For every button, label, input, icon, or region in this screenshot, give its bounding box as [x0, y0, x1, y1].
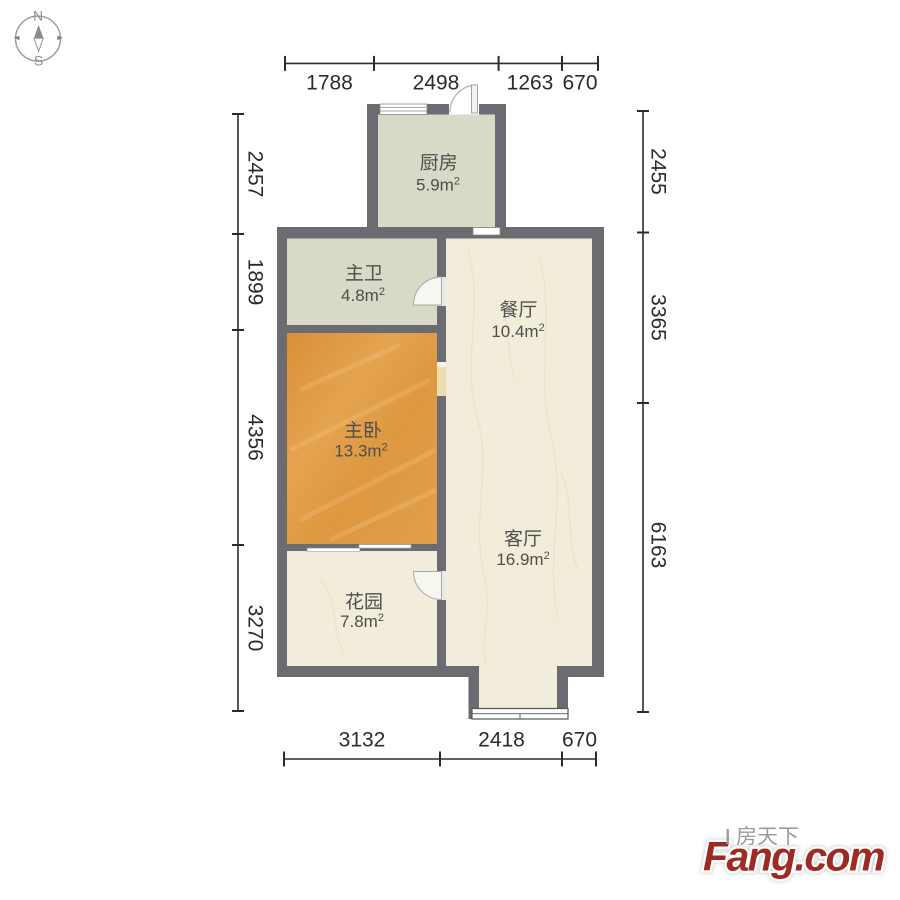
svg-text:4356: 4356 — [244, 414, 267, 461]
svg-text:2455: 2455 — [647, 148, 670, 195]
svg-text:16.9m2: 16.9m2 — [496, 550, 549, 569]
svg-text:670: 670 — [562, 729, 597, 752]
svg-text:3365: 3365 — [647, 294, 670, 341]
svg-text:6163: 6163 — [647, 522, 670, 569]
svg-text:7.8m2: 7.8m2 — [340, 612, 384, 631]
svg-text:S: S — [34, 53, 43, 69]
svg-text:2418: 2418 — [478, 729, 525, 752]
svg-text:5.9m2: 5.9m2 — [416, 176, 460, 195]
svg-text:1899: 1899 — [244, 259, 267, 306]
svg-text:1788: 1788 — [306, 72, 353, 95]
svg-text:3132: 3132 — [339, 729, 386, 752]
svg-text:2498: 2498 — [413, 72, 460, 95]
svg-text:670: 670 — [562, 72, 597, 95]
svg-text:1263: 1263 — [507, 72, 554, 95]
svg-text:N: N — [33, 8, 43, 24]
svg-text:2457: 2457 — [244, 151, 267, 198]
svg-text:13.3m2: 13.3m2 — [334, 442, 387, 461]
svg-text:10.4m2: 10.4m2 — [491, 322, 544, 341]
svg-text:Fang.com: Fang.com — [703, 834, 884, 880]
svg-text:3270: 3270 — [244, 605, 267, 652]
svg-text:4.8m2: 4.8m2 — [341, 286, 385, 305]
